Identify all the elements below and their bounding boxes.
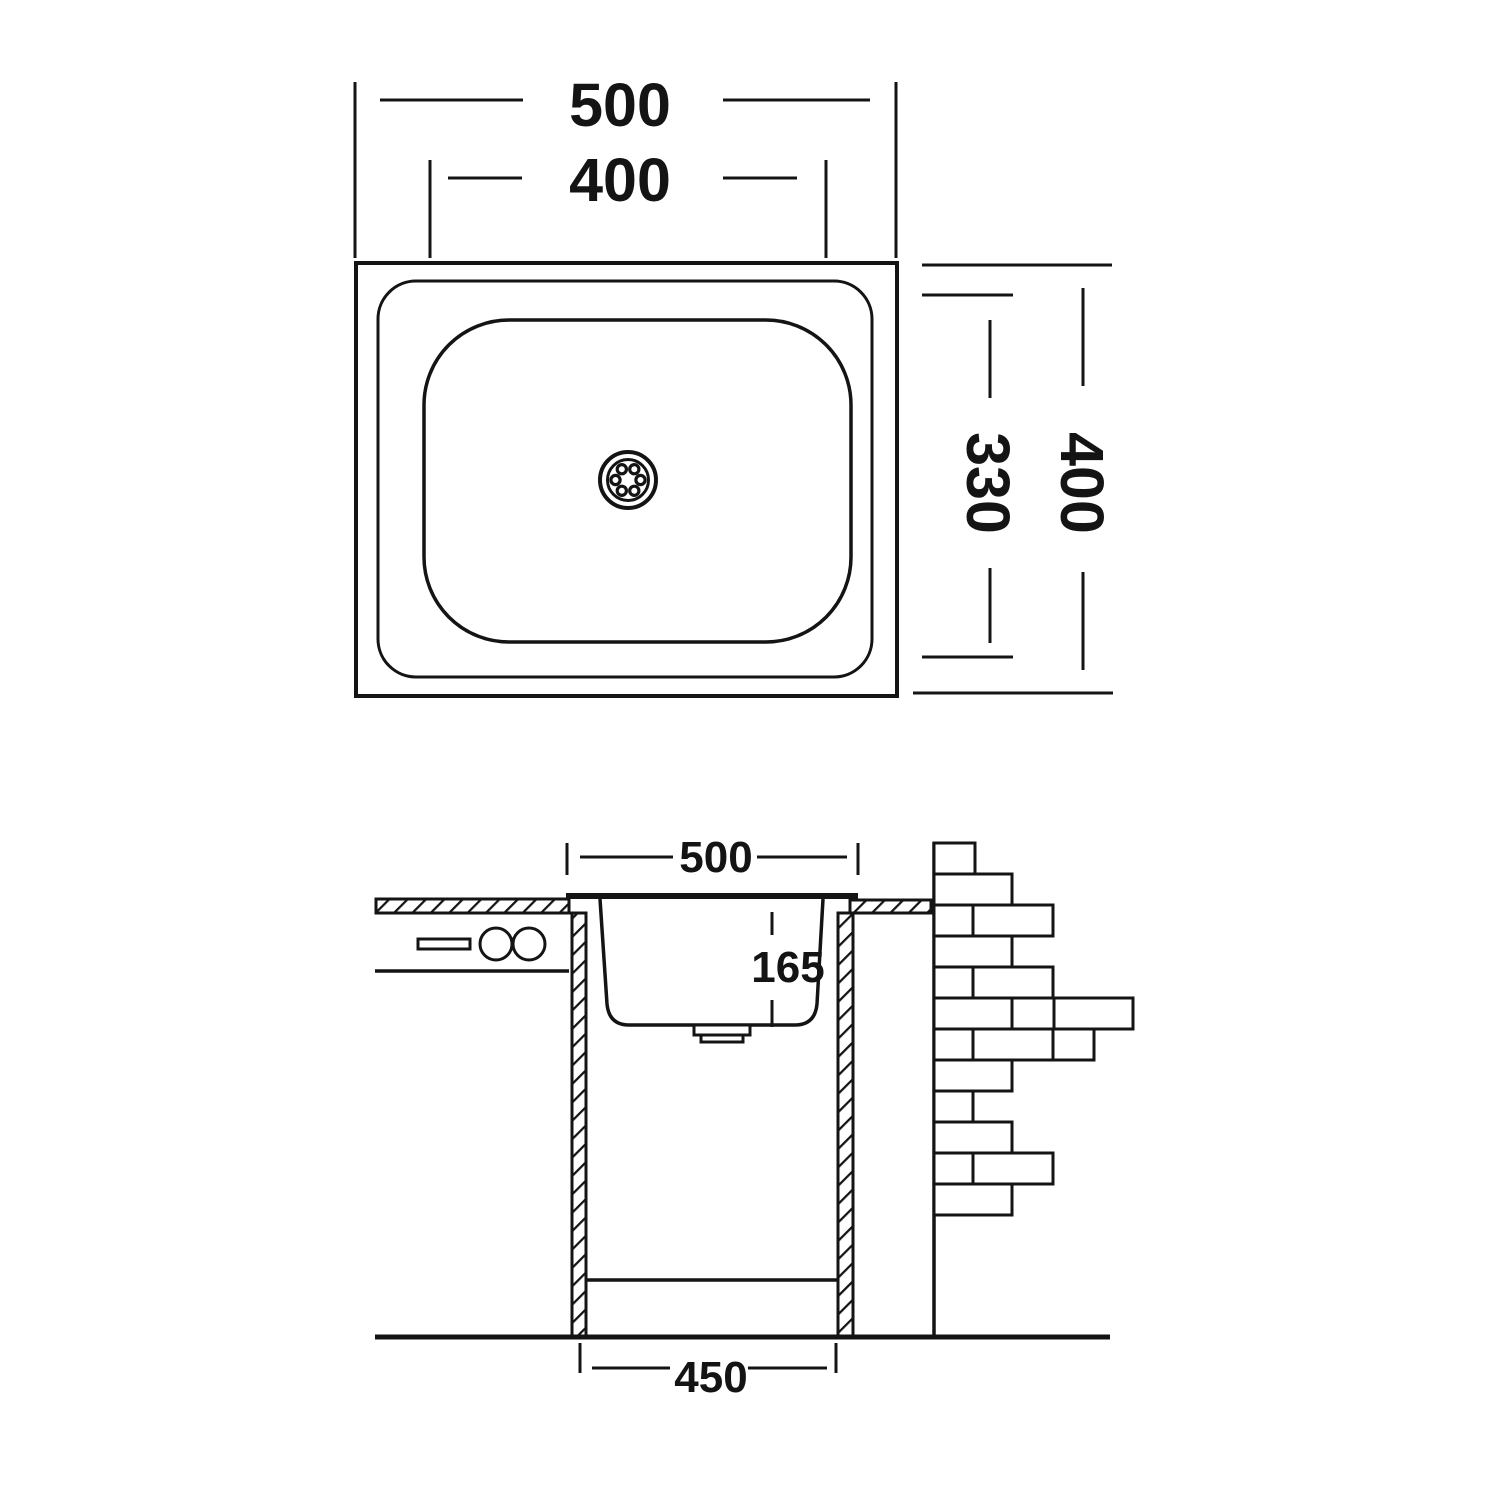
drain-outlet-pipe (701, 1035, 743, 1042)
brick (934, 905, 973, 936)
brick (934, 1091, 973, 1122)
brick (934, 843, 975, 874)
section-view: 500 165 450 (375, 833, 1133, 1402)
brick-wall (934, 842, 1133, 1337)
brick (934, 936, 1012, 967)
cabinet-wall-right (838, 913, 853, 1337)
brick (973, 905, 1053, 936)
brick (934, 874, 1012, 905)
drawer-handle (418, 939, 470, 949)
dim-label-right-outer-depth: 400 (1048, 432, 1116, 534)
brick (973, 1153, 1053, 1184)
drawing-svg: 500 400 400 330 (0, 0, 1500, 1500)
brick (934, 998, 1012, 1029)
dim-label-right-inner-depth: 330 (954, 432, 1022, 534)
brick (1012, 998, 1054, 1029)
control-knob-left (480, 928, 512, 960)
brick (934, 1153, 973, 1184)
dim-label-top-inner-width: 400 (569, 146, 671, 214)
control-knob-right (513, 928, 545, 960)
dim-label-section-opening: 500 (679, 833, 752, 882)
brick (973, 1029, 1053, 1060)
dim-label-section-base: 450 (674, 1353, 747, 1402)
countertop-right (850, 900, 931, 913)
brick (934, 967, 973, 998)
brick (934, 1060, 1012, 1091)
brick (973, 967, 1053, 998)
brick (1054, 998, 1133, 1029)
sink-technical-drawing: 500 400 400 330 (0, 0, 1500, 1500)
dim-label-section-depth: 165 (751, 943, 824, 992)
drain-icon (600, 452, 656, 508)
brick (934, 1029, 973, 1060)
brick (934, 1122, 1012, 1153)
brick (934, 1184, 1012, 1215)
top-view: 500 400 400 330 (355, 71, 1116, 696)
countertop-left (376, 899, 569, 913)
brick (1053, 1029, 1094, 1060)
cabinet-wall-left (572, 913, 586, 1337)
dim-label-top-outer-width: 500 (569, 71, 671, 139)
